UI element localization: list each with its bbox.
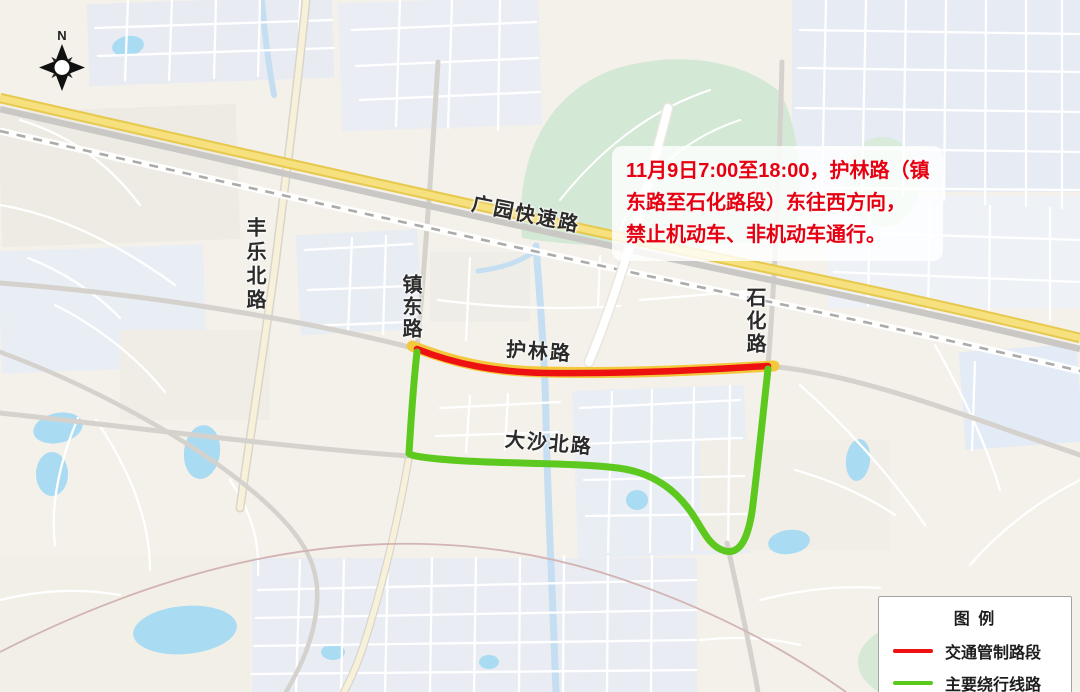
legend: 图 例 交通管制路段 主要绕行线路 xyxy=(878,596,1072,692)
legend-item-label-restricted: 交通管制路段 xyxy=(945,639,1041,663)
detour-route-swatch xyxy=(892,679,934,687)
legend-title: 图 例 xyxy=(879,605,1071,629)
road-label-zhendong: 镇东路 xyxy=(400,274,420,340)
legend-item-detour: 主要绕行线路 xyxy=(879,667,1071,692)
notice-line-3: 禁止机动车、非机动车通行。 xyxy=(626,219,929,251)
traffic-notice: 11月9日7:00至18:00，护林路（镇 东路至石化路段）东往西方向， 禁止机… xyxy=(612,146,943,261)
road-label-shihua: 石化路 xyxy=(744,287,764,356)
legend-item-restricted: 交通管制路段 xyxy=(879,635,1071,667)
notice-line-2: 东路至石化路段）东往西方向， xyxy=(626,187,929,219)
restricted-route-swatch xyxy=(892,647,934,655)
compass-north-label: N xyxy=(57,28,66,43)
notice-line-1: 11月9日7:00至18:00，护林路（镇 xyxy=(626,155,929,187)
road-label-hulin: 护林路 xyxy=(505,340,572,365)
traffic-control-map: N 丰乐北路 镇东路 石化路 广园快速路 护林路 大沙北路 11月9日7:00至… xyxy=(0,0,1080,692)
road-label-fengle-north: 丰乐北路 xyxy=(244,217,264,313)
legend-item-label-detour: 主要绕行线路 xyxy=(945,671,1041,692)
